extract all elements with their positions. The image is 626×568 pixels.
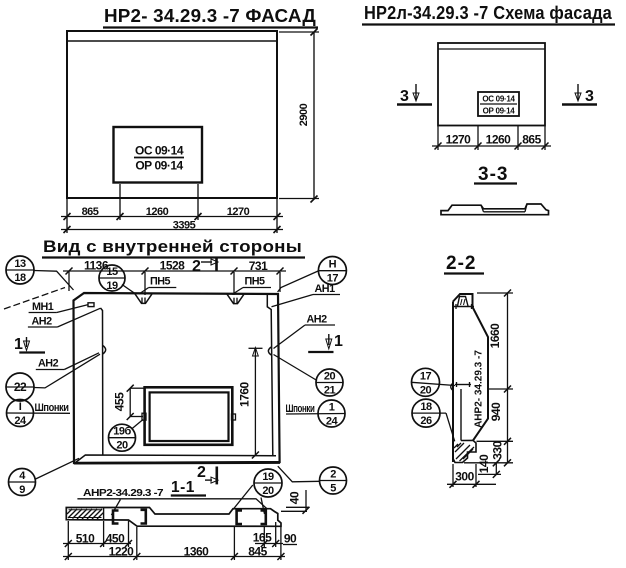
svg-text:1260: 1260	[486, 133, 512, 147]
svg-text:18: 18	[420, 401, 432, 413]
svg-text:ОС 09·14: ОС 09·14	[135, 144, 184, 158]
svg-text:ОР 09·14: ОР 09·14	[135, 159, 183, 173]
svg-text:1760: 1760	[238, 381, 252, 407]
svg-text:ПН5: ПН5	[245, 276, 266, 288]
svg-text:20: 20	[420, 384, 432, 396]
svg-text:20: 20	[262, 485, 274, 497]
svg-text:3: 3	[400, 88, 409, 105]
svg-text:1660: 1660	[488, 323, 502, 349]
svg-text:АН1: АН1	[315, 283, 336, 295]
svg-text:Шпонки: Шпонки	[35, 402, 69, 414]
svg-text:1: 1	[14, 336, 23, 353]
svg-text:1270: 1270	[227, 206, 250, 218]
svg-text:I: I	[19, 401, 22, 413]
svg-text:4: 4	[19, 470, 26, 482]
svg-text:ПН5: ПН5	[150, 276, 171, 288]
svg-text:845: 845	[248, 544, 267, 558]
svg-text:1: 1	[334, 333, 343, 350]
svg-text:2: 2	[330, 469, 336, 481]
svg-text:АН2: АН2	[32, 316, 53, 328]
svg-text:1220: 1220	[109, 544, 135, 558]
svg-text:Вид с внутренней стороны: Вид с внутренней стороны	[43, 237, 302, 256]
svg-text:140: 140	[477, 454, 491, 473]
svg-text:3395: 3395	[173, 219, 196, 231]
svg-text:НР2л-34.29.3 -7 Схема фаса: НР2л-34.29.3 -7 Схема фасада	[364, 3, 613, 23]
svg-text:865: 865	[522, 133, 541, 147]
svg-text:15: 15	[106, 266, 118, 278]
svg-text:МН1: МН1	[32, 301, 54, 313]
svg-text:450: 450	[106, 531, 125, 545]
svg-text:1: 1	[329, 402, 335, 414]
svg-text:9: 9	[19, 484, 25, 496]
svg-text:19: 19	[262, 471, 274, 483]
svg-text:24: 24	[14, 415, 27, 427]
svg-text:АН2: АН2	[38, 358, 59, 370]
svg-text:2: 2	[197, 464, 206, 481]
svg-text:940: 940	[489, 402, 503, 421]
svg-text:24: 24	[326, 416, 339, 428]
svg-text:865: 865	[82, 206, 99, 218]
svg-text:АНР2- 34.29.3 -7: АНР2- 34.29.3 -7	[474, 350, 485, 428]
svg-text:455: 455	[113, 392, 127, 411]
svg-text:22: 22	[14, 380, 27, 394]
svg-text:3: 3	[585, 88, 594, 105]
svg-text:ОС 09·14: ОС 09·14	[482, 95, 515, 104]
svg-text:330: 330	[491, 440, 505, 459]
svg-text:1528: 1528	[160, 259, 186, 273]
svg-text:2: 2	[192, 258, 201, 275]
svg-text:510: 510	[76, 531, 95, 545]
svg-text:18: 18	[14, 272, 26, 284]
svg-text:17: 17	[420, 370, 432, 382]
svg-text:НР2- 34.29.3 -7 ФАСАД: НР2- 34.29.3 -7 ФАСАД	[104, 6, 316, 26]
svg-text:АН2: АН2	[307, 314, 328, 326]
svg-text:300: 300	[455, 470, 474, 484]
svg-text:13: 13	[14, 258, 26, 270]
svg-text:26: 26	[420, 415, 432, 427]
svg-text:19б: 19б	[113, 426, 131, 438]
svg-text:1136: 1136	[84, 259, 109, 273]
svg-text:40: 40	[288, 491, 302, 504]
svg-text:5: 5	[330, 483, 336, 495]
svg-text:1-1: 1-1	[171, 479, 195, 496]
svg-text:19: 19	[106, 280, 118, 292]
svg-text:165: 165	[253, 531, 272, 545]
svg-text:731: 731	[249, 259, 268, 273]
svg-text:1260: 1260	[146, 206, 169, 218]
svg-text:3-3: 3-3	[478, 164, 508, 185]
svg-text:Н: Н	[329, 259, 337, 271]
svg-text:21: 21	[324, 385, 336, 397]
svg-text:20: 20	[324, 371, 336, 383]
svg-text:1270: 1270	[446, 133, 472, 147]
svg-text:90: 90	[284, 531, 297, 545]
svg-text:2-2: 2-2	[446, 253, 476, 274]
svg-text:2900: 2900	[298, 103, 310, 126]
svg-text:АНР2-34.29.3 -7: АНР2-34.29.3 -7	[83, 487, 164, 499]
svg-text:ОР 09·14: ОР 09·14	[483, 107, 516, 116]
svg-text:1360: 1360	[184, 544, 210, 558]
svg-text:20: 20	[116, 440, 128, 452]
